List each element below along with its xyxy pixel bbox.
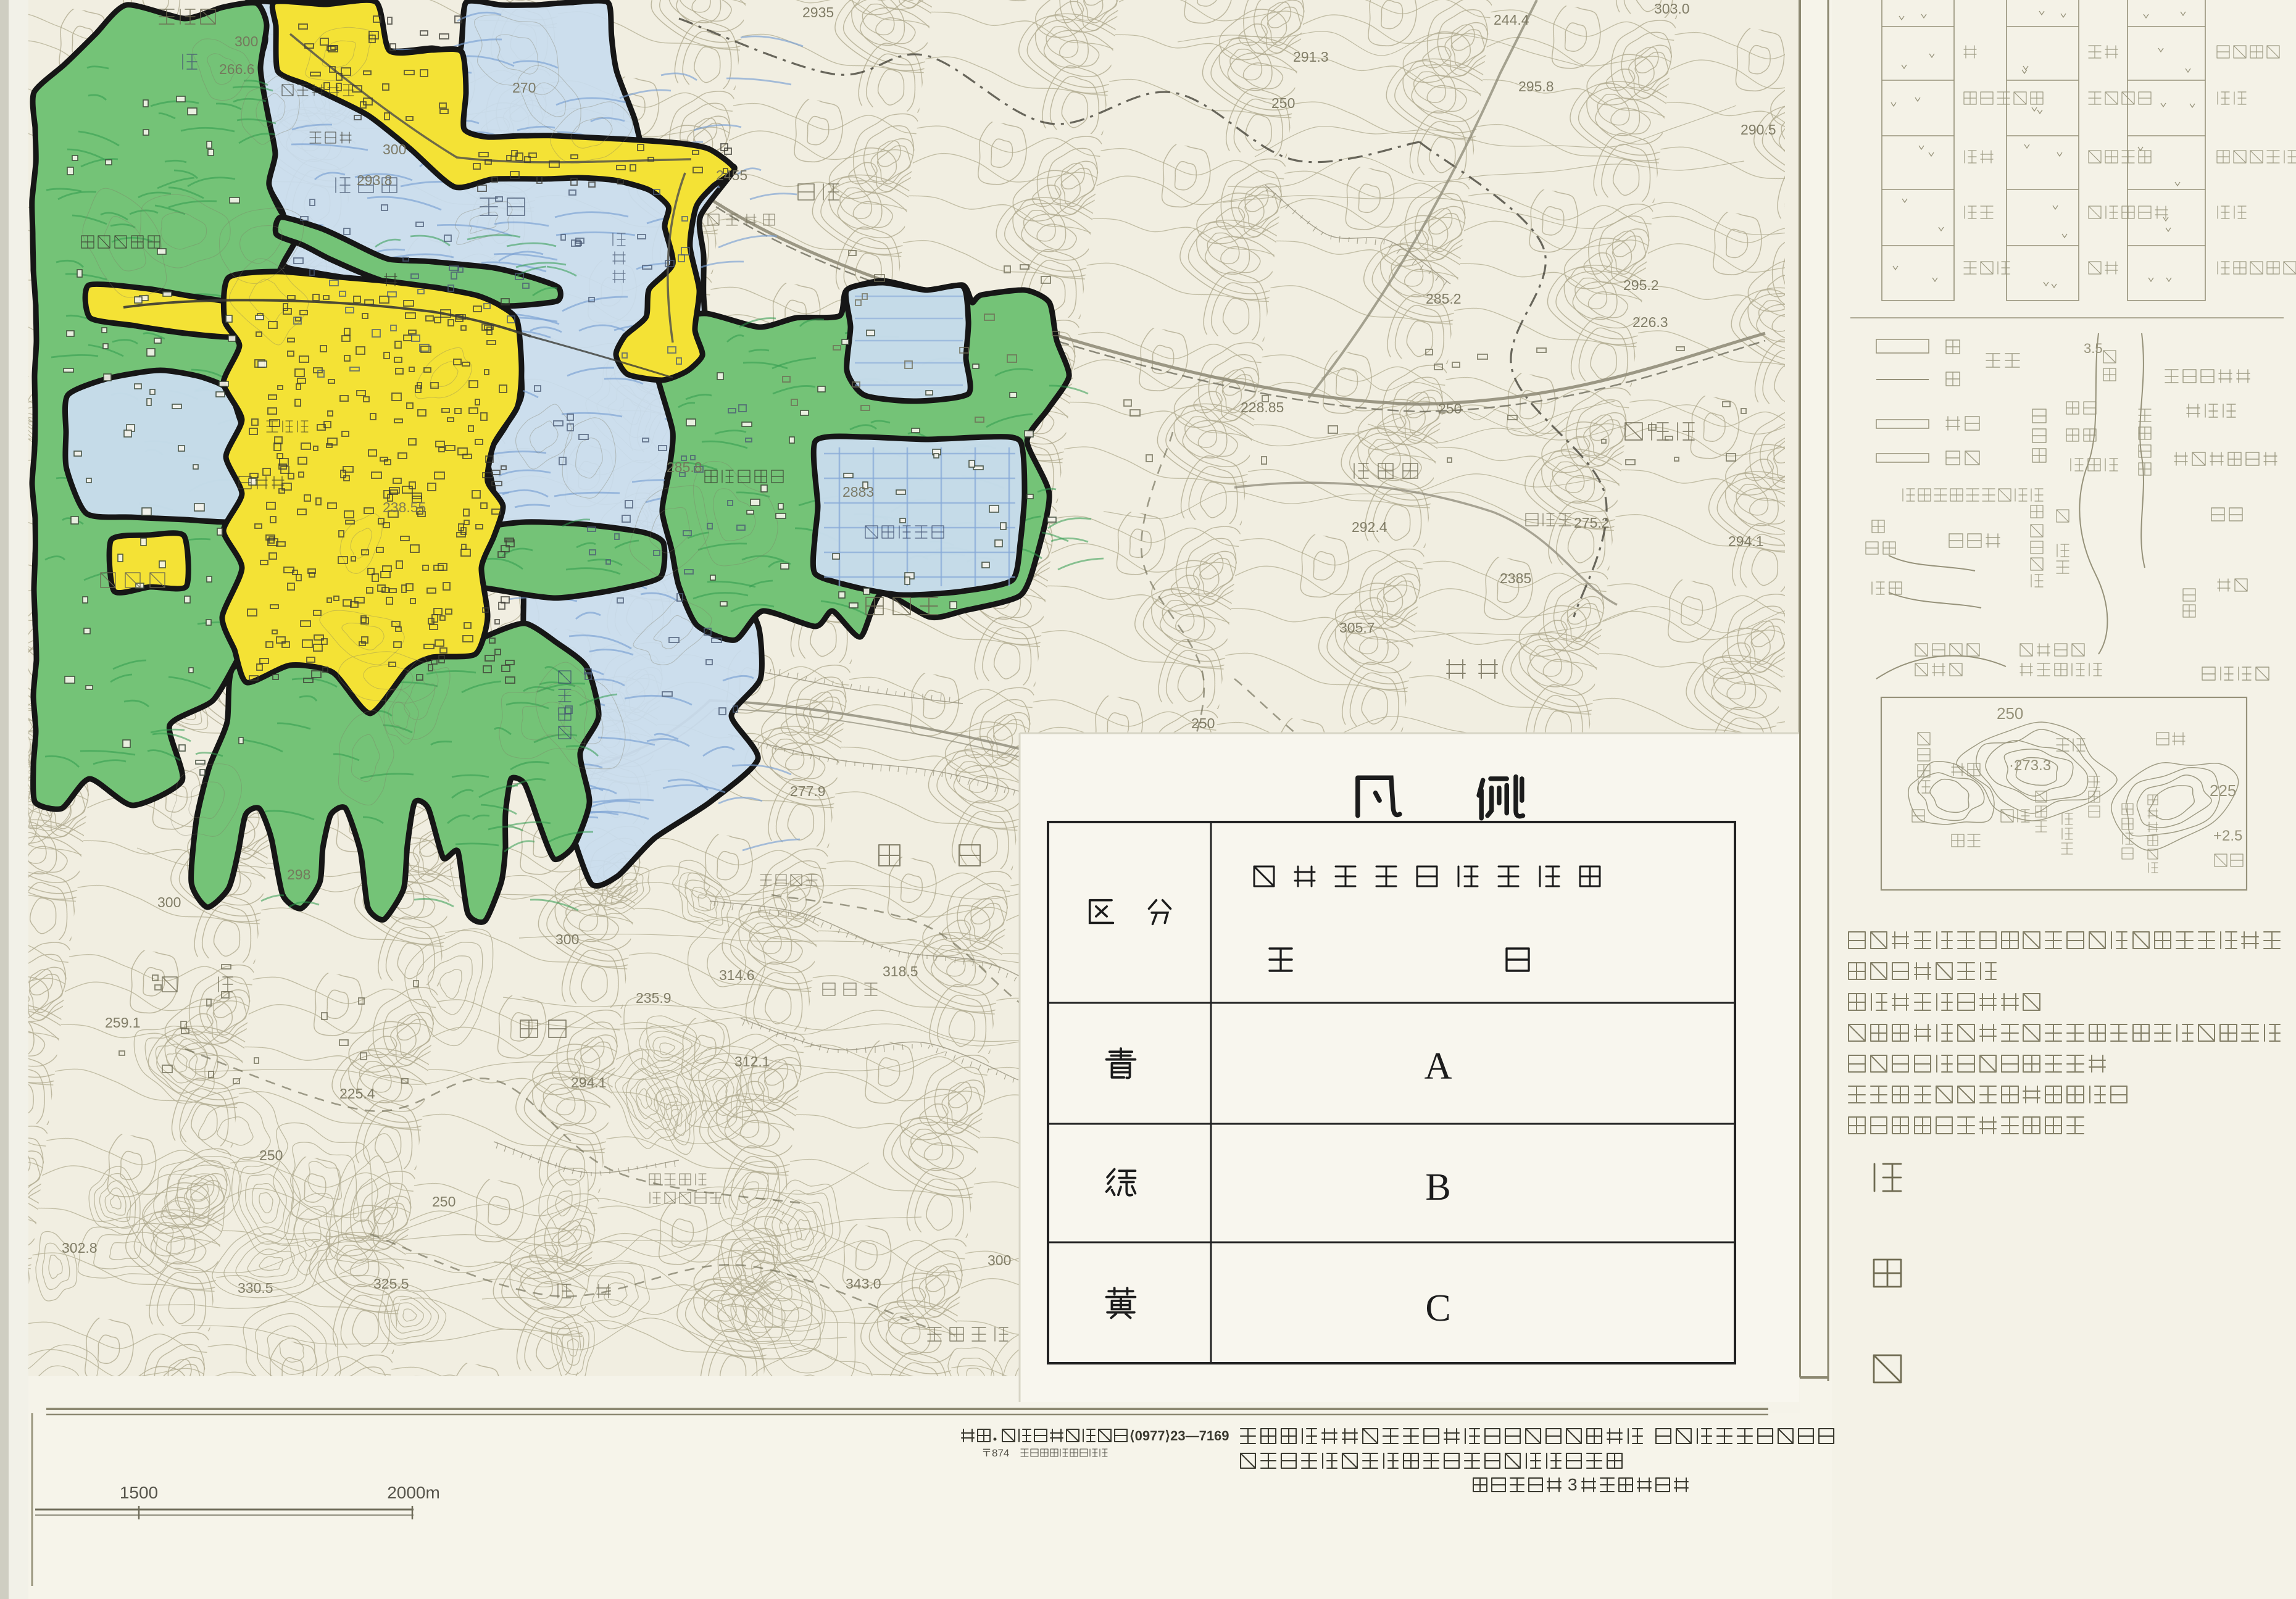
svg-text:225: 225	[2210, 781, 2236, 800]
svg-text:325.5: 325.5	[373, 1276, 409, 1292]
svg-text:235.9: 235.9	[636, 990, 672, 1006]
svg-text:250: 250	[1997, 704, 2023, 723]
svg-text:270: 270	[512, 80, 536, 96]
svg-text:·273.3: ·273.3	[2009, 757, 2051, 774]
svg-text:B: B	[1425, 1166, 1450, 1208]
svg-text:A: A	[1425, 1045, 1452, 1087]
svg-text:285.8: 285.8	[667, 459, 702, 475]
svg-text:300: 300	[235, 33, 258, 49]
svg-text:250: 250	[259, 1147, 283, 1163]
svg-text:302.8: 302.8	[62, 1240, 98, 1256]
svg-text:343.0: 343.0	[846, 1276, 881, 1292]
svg-text:244.4: 244.4	[1494, 12, 1529, 28]
svg-text:275.2: 275.2	[1574, 515, 1610, 531]
svg-text:305.7: 305.7	[1339, 620, 1375, 636]
svg-text:3: 3	[1568, 1475, 1578, 1494]
svg-text:250: 250	[1191, 715, 1215, 731]
svg-text:303.0: 303.0	[1654, 1, 1690, 17]
svg-text:250: 250	[1271, 95, 1295, 111]
svg-text:225.4: 225.4	[339, 1086, 375, 1102]
svg-text:295.8: 295.8	[1518, 78, 1554, 94]
svg-text:292.4: 292.4	[1352, 519, 1387, 535]
svg-text:3.5: 3.5	[2084, 341, 2103, 356]
svg-text:285.2: 285.2	[1426, 291, 1462, 307]
svg-text:238.55: 238.55	[383, 499, 426, 515]
svg-text:291.3: 291.3	[1293, 49, 1329, 65]
svg-text:250: 250	[1438, 401, 1462, 417]
svg-text:330.5: 330.5	[238, 1280, 273, 1296]
svg-text:298: 298	[287, 866, 310, 883]
svg-text:266.6: 266.6	[219, 61, 255, 77]
svg-text:300: 300	[555, 931, 579, 947]
svg-text:314.6: 314.6	[719, 967, 755, 983]
svg-text:300: 300	[383, 141, 406, 157]
svg-text:228.85: 228.85	[1241, 399, 1284, 415]
svg-text:277.9: 277.9	[790, 783, 826, 799]
svg-text:250: 250	[432, 1194, 455, 1210]
svg-text:259.1: 259.1	[105, 1015, 141, 1031]
svg-text:+2.5: +2.5	[2213, 828, 2242, 844]
svg-text:226.3: 226.3	[1633, 314, 1668, 330]
svg-text:294.1: 294.1	[1728, 533, 1764, 549]
svg-text:2385: 2385	[1500, 570, 1531, 586]
svg-text:312.1: 312.1	[734, 1053, 770, 1069]
svg-text:〒874: 〒874	[981, 1447, 1009, 1459]
svg-text:1500: 1500	[120, 1483, 158, 1502]
svg-text:293.8: 293.8	[357, 172, 393, 188]
svg-text:2455: 2455	[716, 167, 747, 183]
svg-text:300: 300	[988, 1252, 1011, 1268]
svg-text:294.1: 294.1	[571, 1074, 607, 1090]
svg-text:290.5: 290.5	[1741, 122, 1776, 138]
svg-text:C: C	[1425, 1287, 1450, 1329]
svg-text:⟨0977⟩23—7169: ⟨0977⟩23—7169	[1129, 1428, 1229, 1443]
svg-text:2000m: 2000m	[387, 1483, 440, 1502]
svg-text:295.2: 295.2	[1623, 277, 1659, 293]
svg-text:300: 300	[157, 894, 181, 910]
svg-text:2935: 2935	[802, 4, 834, 20]
svg-text:2883: 2883	[842, 484, 874, 500]
svg-text:318.5: 318.5	[883, 963, 918, 979]
